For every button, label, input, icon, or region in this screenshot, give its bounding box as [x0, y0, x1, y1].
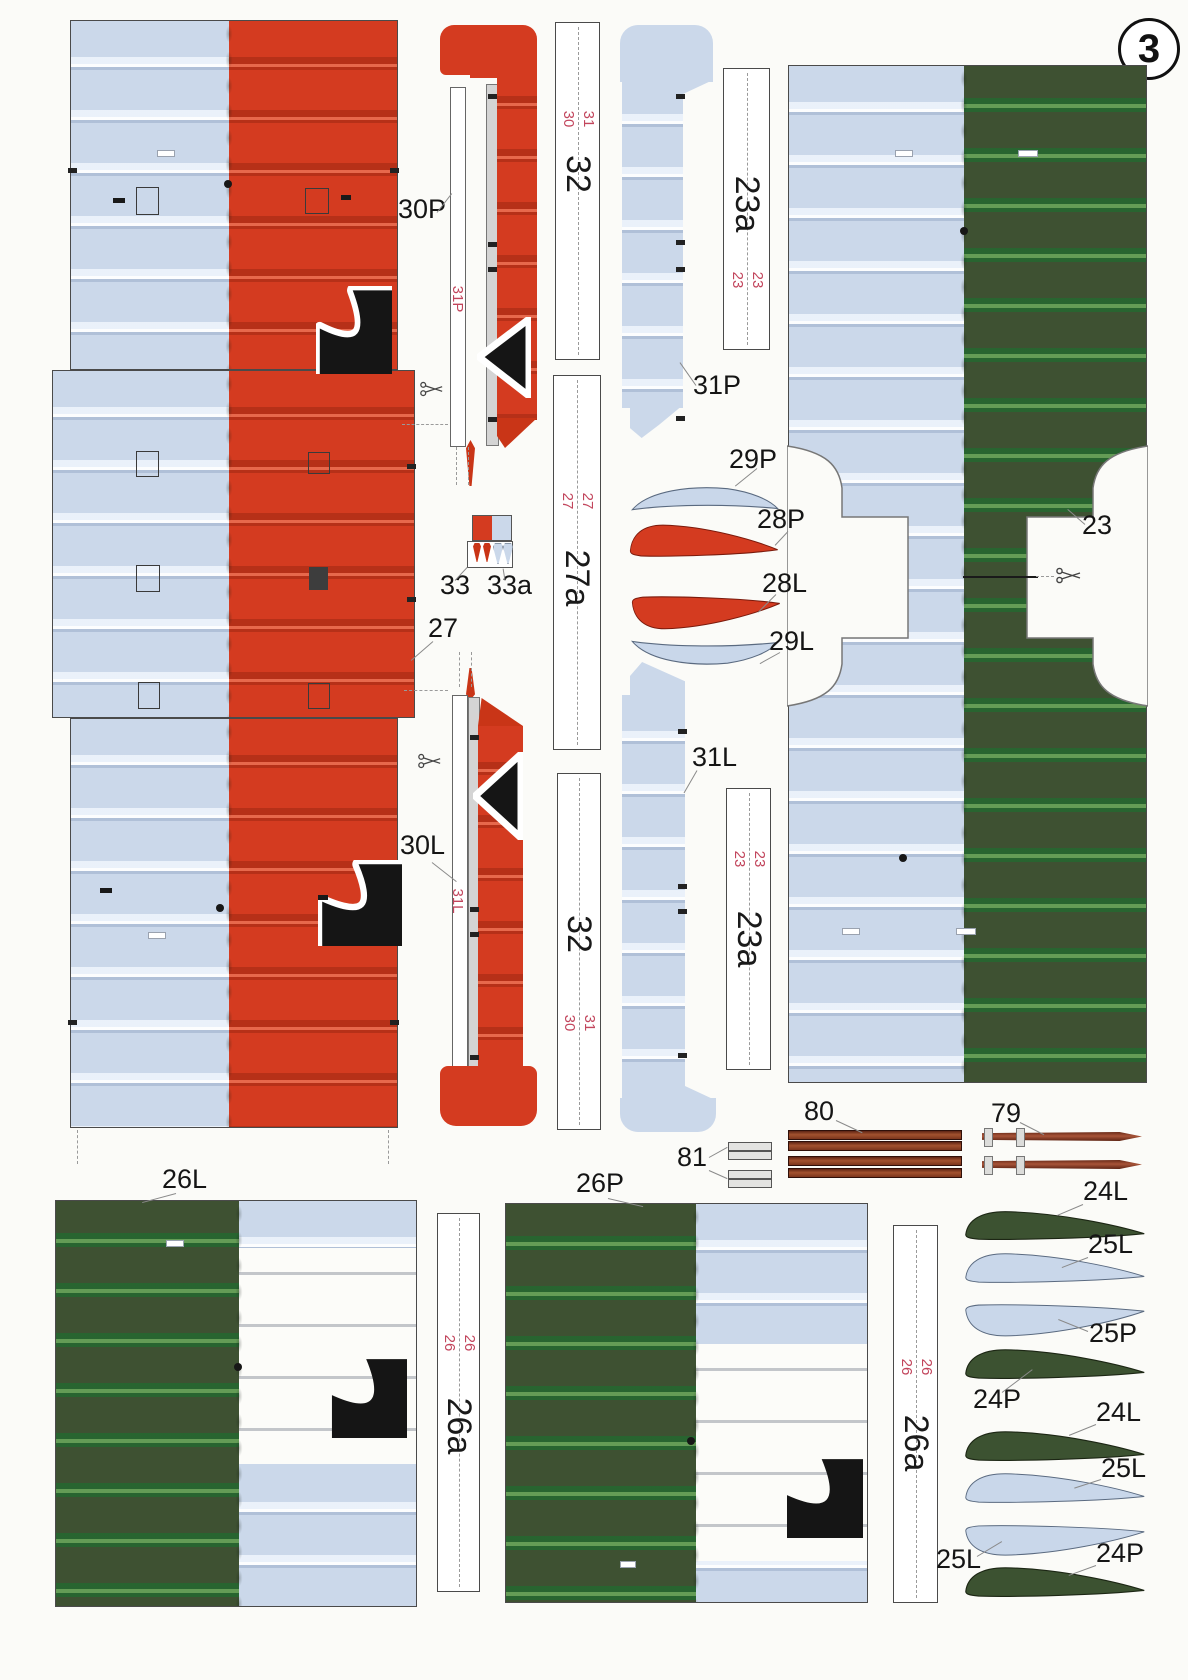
part-30P-joiner [470, 60, 537, 78]
scissors-icon [420, 381, 444, 397]
scissors-icon [1056, 567, 1082, 584]
glue-tab-mark [676, 240, 685, 245]
leader-line [709, 1170, 728, 1179]
fitting-outline [308, 683, 330, 709]
part-33a-label: 33a [487, 572, 532, 599]
cross-arm-piece [477, 317, 531, 398]
part-28P-label: 28P [757, 506, 805, 533]
part-27-label: 27 [428, 615, 458, 642]
strip-title: 23a [732, 911, 766, 968]
blade-label: 24L [1096, 1399, 1141, 1426]
model-parts-sheet: 3 27 [0, 0, 1188, 1680]
iron-cross-marking [703, 1372, 863, 1538]
fold-seam [692, 1204, 700, 1602]
part-28L-blade [630, 595, 782, 633]
skid-rod-79 [982, 1160, 1142, 1169]
part-80-label: 80 [804, 1098, 834, 1125]
part-29L-label: 29L [769, 628, 814, 655]
guide-line [468, 447, 469, 485]
part-31P-label: 31P [693, 372, 741, 399]
shim-strip-81 [728, 1142, 772, 1151]
glue-tab-mark [470, 735, 479, 740]
rod-clip [1016, 1128, 1025, 1147]
join-code-left: 26 [897, 1350, 915, 1384]
join-code-right: 26 [917, 1350, 935, 1384]
part-31P-tail [630, 405, 683, 438]
part-79-label: 79 [991, 1100, 1021, 1127]
glue-tab-mark [470, 1055, 479, 1060]
fitting-outline [136, 187, 159, 215]
window-mark [309, 567, 328, 590]
blade-label: 25L [1101, 1455, 1146, 1482]
part-81-label: 81 [677, 1144, 707, 1171]
strip-title: 26a [442, 1398, 476, 1455]
glue-tab-mark [676, 94, 685, 99]
fitting-outline [305, 188, 329, 214]
blade-label: 25L [936, 1546, 981, 1573]
blade-label: 25P [1089, 1320, 1137, 1347]
rigging-mark [895, 150, 913, 157]
shim-strip-81 [728, 1170, 772, 1179]
join-code-left: 23 [730, 842, 748, 876]
strip-26a-right: 26 26 26a [893, 1225, 938, 1603]
glue-tab-mark [390, 1020, 399, 1025]
fitting-mark [318, 895, 328, 900]
join-code-left: 27 [558, 484, 576, 518]
fitting-outline [138, 682, 160, 709]
join-code-left: 23 [728, 263, 746, 297]
join-code-right: 27 [578, 484, 596, 518]
glue-tab-mark [678, 909, 687, 914]
blade-label: 24P [973, 1386, 1021, 1413]
join-code-right: 23 [748, 263, 766, 297]
leader-line [684, 770, 698, 793]
wing-26P-label: 26P [576, 1170, 624, 1197]
strip-32-top: 30 31 32 [555, 22, 600, 360]
part-30P-edge-code: 31P [448, 282, 466, 316]
fold-seam [225, 719, 233, 1127]
glue-tab-mark [678, 884, 687, 889]
strip-title: 26a [899, 1415, 933, 1472]
drill-dot [687, 1437, 695, 1445]
rigging-mark [620, 1561, 636, 1568]
join-code-right: 23 [750, 842, 768, 876]
rigging-mark [842, 928, 860, 935]
fitting-outline [136, 565, 160, 592]
glue-tab-mark [676, 416, 685, 421]
cut-guide [404, 690, 448, 691]
glue-tab-mark [676, 267, 685, 272]
fitting-mark [341, 195, 351, 200]
part-31P-body [622, 78, 683, 408]
join-code-left: 26 [440, 1326, 458, 1360]
blade-label: 24L [1083, 1178, 1128, 1205]
part-28L-label: 28L [762, 570, 807, 597]
guide-line [459, 652, 460, 687]
rod-clip [1016, 1156, 1025, 1175]
join-code-left: 30 [560, 1006, 578, 1040]
part-23-label: 23 [1082, 512, 1112, 539]
spar-rod-80 [788, 1156, 962, 1166]
cut-guide [402, 424, 448, 425]
rigging-mark [1018, 150, 1038, 157]
glue-tab-mark [678, 729, 687, 734]
iron-cross-marking [240, 198, 392, 374]
part-30L-backing [452, 695, 468, 1070]
chip-blue-half [492, 516, 511, 540]
part-31L-bottom-blob [620, 1098, 716, 1132]
strip-27a: 27 27 27a [553, 375, 601, 750]
fitting-mark [113, 198, 125, 203]
rigging-mark [166, 1240, 184, 1247]
blade-24P [963, 1346, 1147, 1380]
part-30P-backing [450, 87, 466, 447]
part-30L-edge-code: 31L [448, 884, 466, 918]
glue-tab-mark [68, 168, 77, 173]
part-29L-blade [630, 638, 780, 670]
glue-tab-mark [488, 94, 497, 99]
glue-tab-mark [470, 932, 479, 937]
strip-23a-top: 23a 23 23 [723, 68, 770, 350]
guide-line [471, 652, 472, 687]
leader-line [709, 1147, 728, 1158]
fold-seam [225, 371, 233, 717]
join-code-left: 30 [559, 102, 577, 136]
part-31L-label: 31L [692, 744, 737, 771]
part-27-red-area [229, 371, 414, 717]
part-33-label: 33 [440, 572, 470, 599]
rod-clip [984, 1128, 993, 1147]
glue-tab-mark [678, 1053, 687, 1058]
guide-line [388, 1130, 389, 1164]
cross-arm-piece [473, 752, 523, 840]
glue-tab-mark [488, 242, 497, 247]
fitting-mark [100, 888, 112, 893]
guide-line [456, 447, 457, 485]
blade-label: 25L [1088, 1231, 1133, 1258]
wing-26L-green-area [56, 1201, 239, 1606]
iron-cross-marking [249, 1272, 407, 1438]
part-27-mid-section [52, 370, 415, 718]
guide-line [77, 1130, 78, 1164]
part-27-blue-area [71, 719, 229, 1127]
chip-red-half [473, 516, 492, 540]
skid-rod-79 [982, 1132, 1142, 1141]
blade-24P [963, 1564, 1147, 1598]
glue-tab-mark [470, 907, 479, 912]
part-30L-bottom-blob [440, 1066, 537, 1126]
strip-title: 32 [561, 155, 595, 193]
drill-dot [224, 180, 232, 188]
spar-rod-80 [788, 1141, 962, 1151]
rigging-mark [148, 932, 166, 939]
fitting-outline [136, 451, 159, 477]
scissors-icon [418, 753, 442, 769]
spar-rod-80 [788, 1168, 962, 1178]
spar-rod-80 [788, 1130, 962, 1140]
shim-strip-81 [728, 1179, 772, 1188]
glue-tab-mark [390, 168, 399, 173]
drill-dot [216, 904, 224, 912]
rod-clip [984, 1156, 993, 1175]
fold-seam [235, 1201, 243, 1606]
part-31P-top-blob [620, 25, 713, 82]
strip-23a-bottom: 23 23 23a [726, 788, 771, 1070]
glue-tab-mark [68, 1020, 77, 1025]
drill-dot [234, 1363, 242, 1371]
drill-dot [960, 227, 968, 235]
rigging-mark [157, 150, 175, 157]
strip-26a-left: 26 26 26a [437, 1213, 480, 1592]
part-33-colour-chip [472, 515, 512, 541]
part-30L-taper [478, 698, 523, 726]
join-code-right: 26 [460, 1326, 478, 1360]
part-31P-step [683, 80, 713, 94]
glue-tab-mark [488, 417, 497, 422]
rigging-mark [956, 928, 976, 935]
part-29P-label: 29P [729, 446, 777, 473]
join-code-right: 31 [580, 1006, 598, 1040]
glue-tab-mark [407, 597, 416, 602]
fold-seam [225, 21, 233, 369]
cut-guide [1036, 576, 1054, 577]
fitting-outline [308, 452, 330, 474]
strip-title: 27a [560, 550, 594, 607]
part-27-blue-area [53, 371, 229, 717]
shim-strip-81 [728, 1151, 772, 1160]
join-code-right: 31 [579, 102, 597, 136]
part-30L-label: 30L [400, 832, 445, 859]
wing-26L-label: 26L [162, 1166, 207, 1193]
wing-26P-green-area [506, 1204, 696, 1602]
blade-label: 24P [1096, 1540, 1144, 1567]
part-30P-taper [497, 418, 537, 448]
strip-title: 23a [730, 176, 764, 233]
glue-tab-mark [488, 267, 497, 272]
cut-line [963, 576, 1038, 578]
strip-32-bottom: 32 30 31 [557, 773, 601, 1130]
strip-title: 32 [562, 915, 596, 953]
drill-dot [899, 854, 907, 862]
iron-cross-marking [234, 774, 402, 946]
glue-tab-mark [407, 464, 416, 469]
part-31L-body [622, 695, 685, 1101]
